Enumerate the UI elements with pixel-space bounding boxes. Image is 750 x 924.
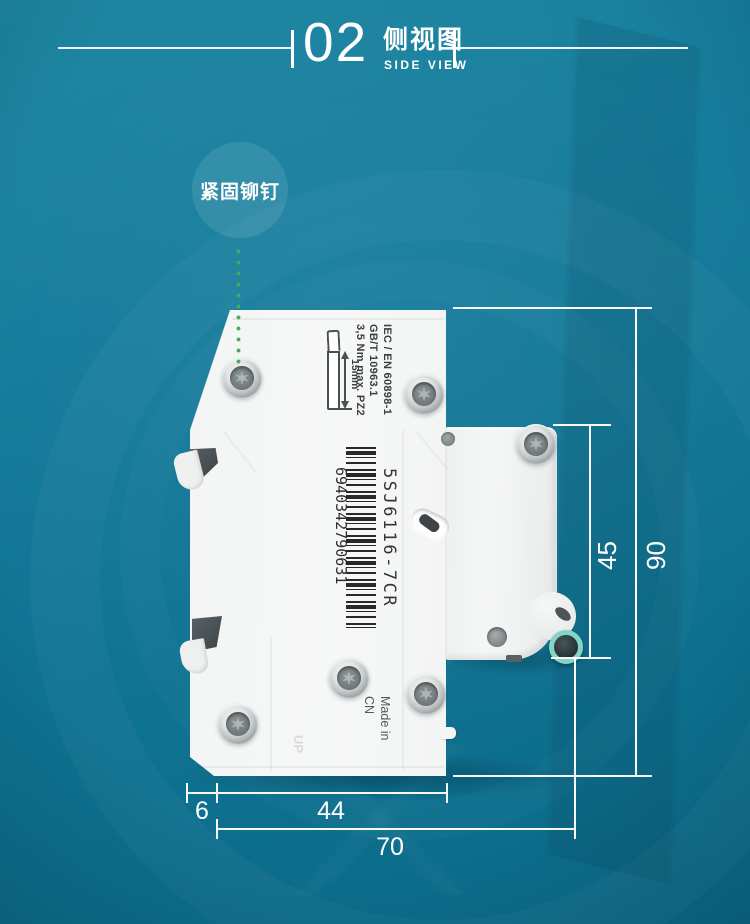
strip-length-label: 15mm: [349, 359, 361, 389]
header-rule-left: [58, 47, 291, 49]
screw-icon: [218, 704, 258, 744]
screw-icon: [222, 358, 262, 398]
screw-icon: [329, 658, 369, 698]
round-hole: [487, 627, 507, 647]
dim-tick: [446, 783, 448, 803]
up-embossed-label: UP: [291, 735, 306, 753]
header-bar-left: [291, 30, 294, 68]
section-number: 02: [303, 12, 368, 72]
screw-icon: [404, 374, 444, 414]
dim-90-label: 90: [643, 541, 669, 570]
dim-tick: [574, 819, 576, 839]
bottom-bevel-line: [196, 766, 444, 768]
dim-70-line: [216, 828, 576, 830]
arrow-foot-line: [330, 408, 352, 410]
wire-conductor-icon: [327, 351, 340, 410]
top-bevel-line: [232, 318, 444, 320]
callout-label: 紧固铆钉: [200, 177, 280, 204]
made-in-line: Made in: [377, 696, 393, 740]
header-bar-right: [453, 30, 456, 68]
side-tab: [440, 727, 456, 739]
section-title-cn: 侧视图: [383, 25, 464, 55]
dim-tick: [216, 819, 218, 839]
mount-bottom-notch: [506, 655, 522, 662]
mount-seam: [445, 427, 447, 660]
dim-44-label: 44: [317, 797, 345, 826]
dim-45-ext-top: [553, 424, 611, 426]
wire-insulation-icon: [326, 330, 340, 352]
molding-seam-right: [402, 430, 404, 770]
screw-icon: [516, 424, 556, 464]
molding-seam-left: [270, 636, 272, 772]
dim-45-label: 45: [594, 541, 620, 570]
made-in-label: Made in CN: [361, 696, 392, 740]
dim-45-ext-bottom: [551, 657, 611, 659]
arrow-up-icon: [341, 351, 349, 359]
dim-70-ext-right: [574, 658, 576, 838]
dim-90-ext-bottom: [453, 775, 652, 777]
dim-tick: [216, 783, 218, 803]
product-serial-number: 5SJ6116-7CR: [381, 468, 396, 608]
header-rule-right: [459, 47, 688, 49]
dim-45-line: [589, 424, 591, 659]
pin-hole: [441, 432, 455, 446]
cert-line: GB/T 10963.1: [366, 324, 380, 416]
dim-tick: [186, 783, 188, 803]
cert-line: IEC / EN 60898-1: [380, 324, 394, 416]
strip-length-arrow: [344, 355, 346, 405]
screw-icon: [406, 674, 446, 714]
barcode-icon: [346, 447, 376, 628]
product-side-view-page: 02 侧视图 SIDE VIEW 紧固铆钉: [0, 0, 750, 924]
dim-90-line: [635, 307, 637, 777]
dim-44-line: [186, 792, 448, 794]
dim-70-label: 70: [376, 833, 404, 862]
made-in-country: CN: [361, 696, 377, 740]
dim-6-label: 6: [195, 797, 209, 826]
dim-90-ext-top: [453, 307, 652, 309]
callout-bubble: 紧固铆钉: [192, 142, 288, 238]
callout-dotted-leader: [236, 246, 241, 372]
